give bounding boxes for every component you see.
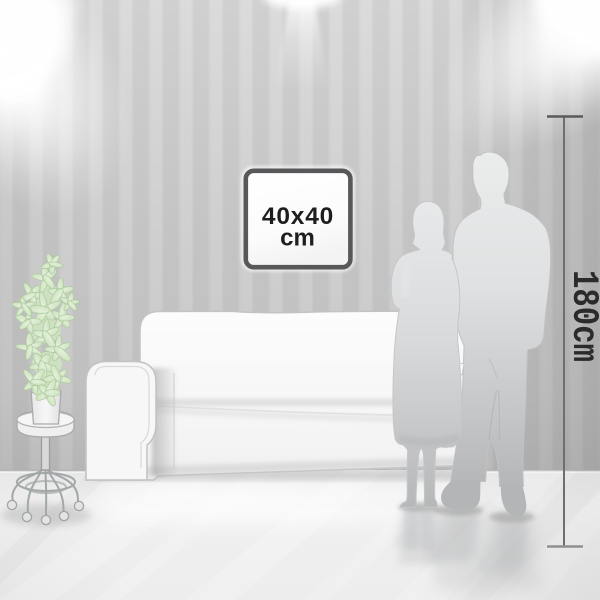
svg-text:cm: cm xyxy=(280,225,315,252)
svg-text:180cm: 180cm xyxy=(562,270,600,362)
